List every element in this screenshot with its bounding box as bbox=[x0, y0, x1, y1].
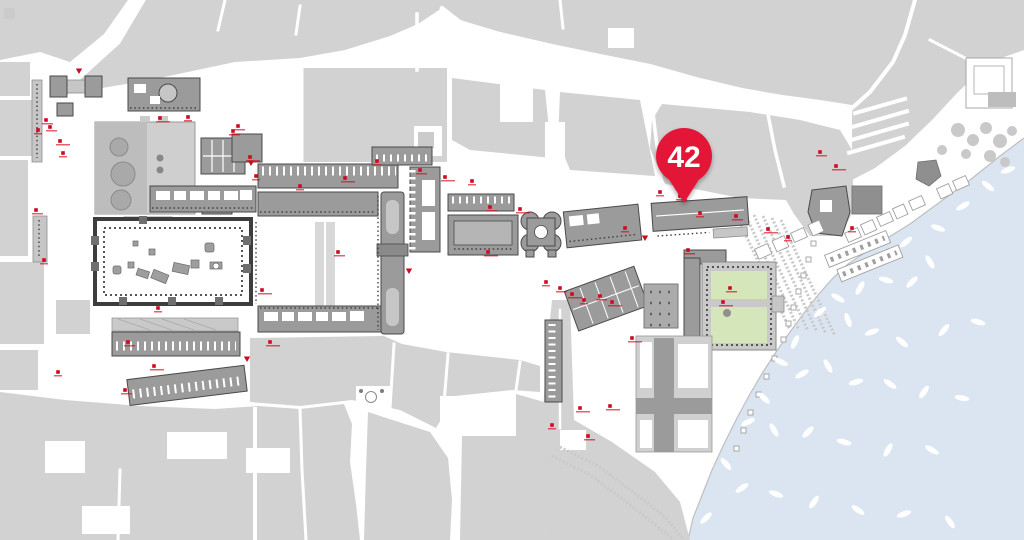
site-marker-triangle bbox=[248, 161, 254, 167]
dark-square-building bbox=[852, 186, 882, 214]
site-marker bbox=[542, 280, 550, 286]
pin-number-label: 42 bbox=[667, 141, 700, 174]
apse-building bbox=[128, 78, 200, 111]
green-cloister bbox=[702, 262, 784, 350]
site-marker bbox=[46, 125, 57, 131]
site-marker-triangle bbox=[406, 269, 412, 275]
dotted-square-building bbox=[644, 284, 678, 328]
crenellated-building bbox=[410, 167, 440, 252]
cloister-well bbox=[723, 309, 731, 317]
site-marker bbox=[42, 118, 53, 124]
site-plan-map: 42 bbox=[0, 0, 1024, 540]
west-portico bbox=[32, 80, 47, 262]
site-marker-triangle bbox=[244, 357, 250, 363]
site-marker bbox=[258, 288, 272, 294]
east-slab-building bbox=[563, 204, 641, 248]
site-marker bbox=[516, 207, 530, 213]
site-marker bbox=[56, 139, 70, 145]
quatrefoil-building bbox=[521, 212, 561, 257]
central-temple-building bbox=[448, 215, 518, 255]
lawn-north bbox=[711, 271, 767, 299]
trees bbox=[937, 122, 1017, 167]
site-marker bbox=[184, 115, 192, 121]
site-marker-triangle bbox=[642, 236, 648, 242]
site-marker bbox=[576, 406, 590, 412]
cross-courtyard-complex bbox=[636, 336, 712, 452]
vertical-spine-building bbox=[377, 192, 408, 334]
site-marker bbox=[441, 175, 455, 181]
thin-comb-building bbox=[545, 320, 562, 402]
small-temple bbox=[232, 134, 262, 162]
south-market-buildings bbox=[112, 318, 247, 405]
site-marker bbox=[54, 370, 62, 376]
lawn-south bbox=[711, 307, 767, 343]
site-marker bbox=[150, 364, 164, 370]
site-marker bbox=[59, 151, 67, 157]
plaza-south-row bbox=[258, 306, 384, 332]
site-marker bbox=[606, 404, 620, 410]
site-marker bbox=[154, 306, 162, 312]
round-court bbox=[356, 386, 390, 408]
rotated-southwest-building bbox=[564, 266, 648, 331]
forum bbox=[91, 216, 251, 305]
site-marker bbox=[656, 190, 664, 196]
site-marker bbox=[468, 179, 476, 185]
site-marker bbox=[234, 124, 245, 130]
site-marker bbox=[32, 208, 43, 214]
pentagon-building bbox=[916, 160, 941, 186]
site-marker bbox=[556, 286, 567, 292]
location-pin[interactable]: 42 bbox=[656, 128, 712, 203]
map-canvas: 42 bbox=[0, 0, 1024, 540]
site-marker bbox=[334, 250, 345, 256]
